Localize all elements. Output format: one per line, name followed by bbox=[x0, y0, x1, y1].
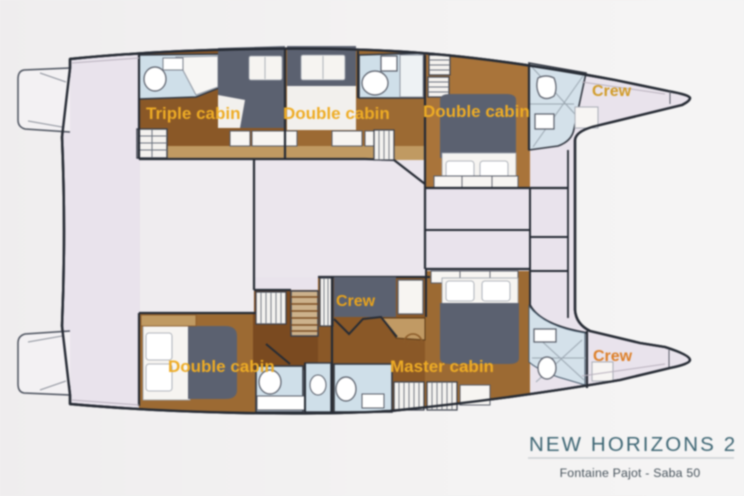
svg-text:Master cabin: Master cabin bbox=[390, 357, 494, 376]
svg-text:Crew: Crew bbox=[592, 83, 632, 100]
svg-text:Double cabin: Double cabin bbox=[168, 357, 275, 376]
svg-text:Crew: Crew bbox=[336, 293, 376, 310]
svg-text:NEW HORIZONS 2: NEW HORIZONS 2 bbox=[529, 433, 737, 456]
svg-text:Fontaine Pajot - Saba 50: Fontaine Pajot - Saba 50 bbox=[560, 466, 701, 480]
svg-text:Double cabin: Double cabin bbox=[283, 104, 390, 123]
svg-text:Double cabin: Double cabin bbox=[423, 102, 530, 121]
svg-text:Triple cabin: Triple cabin bbox=[146, 104, 240, 123]
svg-text:Crew: Crew bbox=[593, 348, 633, 365]
